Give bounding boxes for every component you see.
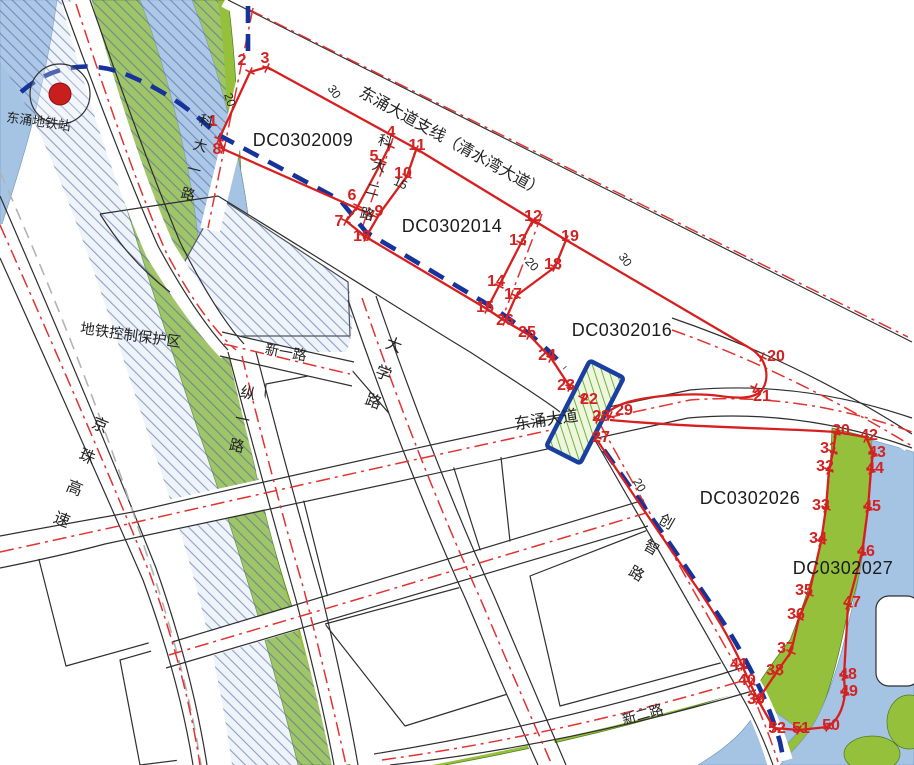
point-label: 38 (766, 662, 784, 679)
point-label: 2 (238, 52, 247, 69)
point-label: 24 (538, 347, 556, 364)
point-label: 42 (860, 427, 878, 444)
point-label: 41 (730, 656, 748, 673)
parcel-label: DC0302014 (402, 216, 503, 236)
point-label: 25 (518, 324, 536, 341)
point-label: 9 (375, 203, 384, 220)
point-label: 16 (353, 228, 371, 245)
point-label: 39 (747, 691, 765, 708)
point-label: 32 (816, 458, 834, 475)
point-label: 48 (839, 666, 857, 683)
point-label: 8 (213, 141, 222, 158)
point-label: 44 (866, 460, 884, 477)
point-label: 6 (348, 187, 357, 204)
point-label: 50 (822, 717, 840, 734)
point-label: 12 (524, 208, 542, 225)
point-label: 17 (504, 286, 522, 303)
point-label: 21 (753, 388, 771, 405)
point-label: 49 (840, 683, 858, 700)
point-label: 36 (787, 606, 805, 623)
point-label: 3 (261, 50, 270, 67)
point-label: 14 (487, 273, 505, 290)
point-label: 37 (777, 640, 795, 657)
point-label: 33 (812, 497, 830, 514)
planning-map-canvas: 1234567891011121314151617181920212223242… (0, 0, 914, 765)
point-label: 34 (809, 530, 827, 547)
point-label: 23 (557, 377, 575, 394)
point-label: 29 (615, 402, 633, 419)
point-label: 15 (476, 299, 494, 316)
point-label: 30 (832, 422, 850, 439)
parcel-label: DC0302009 (253, 130, 354, 150)
point-label: 19 (561, 228, 579, 245)
point-label: 45 (863, 498, 881, 515)
point-label: 11 (409, 137, 426, 154)
point-label: 20 (767, 348, 785, 365)
station-dot (49, 83, 71, 105)
point-label: 51 (792, 720, 810, 737)
point-label: 13 (509, 232, 527, 249)
point-label: 18 (544, 256, 562, 273)
point-label: 27 (592, 429, 610, 446)
point-label: 47 (843, 594, 861, 611)
point-label: 40 (738, 672, 756, 689)
parcel-label: DC0302016 (572, 320, 673, 340)
planning-map: 1234567891011121314151617181920212223242… (0, 0, 914, 765)
point-label: 31 (820, 440, 838, 457)
point-label: 26 (496, 312, 514, 329)
point-label: 28 (592, 408, 610, 425)
parcel-label: DC0302026 (700, 488, 801, 508)
river-white-block (876, 596, 914, 686)
point-label: 52 (768, 720, 786, 737)
point-label: 7 (335, 213, 344, 230)
parcel-label: DC0302027 (793, 558, 894, 578)
point-label: 43 (868, 444, 886, 461)
point-label: 35 (795, 582, 813, 599)
point-label: 22 (580, 391, 598, 408)
